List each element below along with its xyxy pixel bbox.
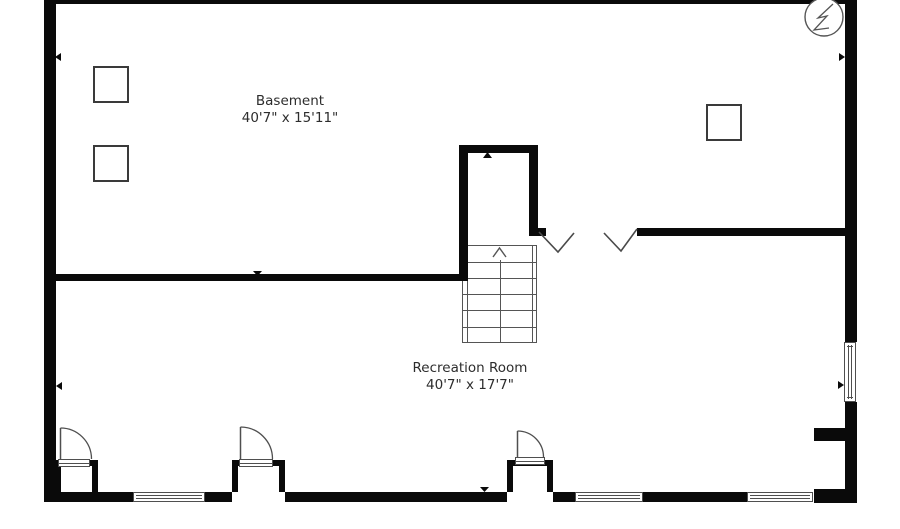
window-pane-line bbox=[750, 495, 810, 496]
window-sill-line bbox=[847, 346, 853, 347]
wall-right-lower bbox=[845, 402, 857, 503]
window-right-wall bbox=[844, 342, 856, 402]
door-threshold bbox=[58, 459, 90, 467]
support-post bbox=[706, 104, 742, 141]
wall-marker-left-icon bbox=[56, 382, 62, 390]
window-pane-line bbox=[750, 498, 810, 499]
window-pane-line bbox=[851, 345, 852, 399]
floorplan-canvas: Basement 40'7" x 15'11" Recreation Room … bbox=[0, 0, 900, 529]
stair-tread bbox=[463, 278, 536, 279]
support-post bbox=[93, 66, 129, 103]
door-swing-arc bbox=[61, 428, 92, 459]
lightning-bolt-icon bbox=[814, 4, 833, 30]
window-pane-line bbox=[136, 495, 202, 496]
wall-stairwell-right bbox=[529, 145, 538, 236]
wall-interior-left bbox=[56, 274, 463, 281]
wall-stairwell-return bbox=[538, 228, 546, 236]
stair-tread bbox=[463, 327, 536, 328]
wall-niche-top bbox=[814, 428, 846, 441]
wall-bottom-seg bbox=[205, 492, 232, 502]
staircase bbox=[462, 245, 537, 343]
opening-v-mark bbox=[604, 229, 637, 251]
wall-niche-bottom bbox=[814, 489, 857, 503]
wall-bottom-seg bbox=[285, 492, 507, 502]
door-opening bbox=[238, 466, 279, 492]
wall-stairwell-top bbox=[459, 145, 538, 153]
room-dimensions: 40'7" x 17'7" bbox=[413, 377, 528, 394]
wall-top bbox=[44, 0, 857, 4]
window bbox=[133, 492, 205, 502]
stair-tread bbox=[463, 294, 536, 295]
window-pane-line bbox=[848, 345, 849, 399]
door-opening bbox=[513, 466, 547, 492]
window-pane-line bbox=[578, 498, 640, 499]
door-opening bbox=[61, 466, 92, 492]
niche-interior bbox=[822, 441, 845, 489]
door-threshold bbox=[239, 459, 273, 467]
stair-tread bbox=[463, 310, 536, 311]
stair-center-line bbox=[500, 260, 501, 342]
wall-right-upper bbox=[845, 0, 857, 342]
electrical-panel-icon bbox=[805, 0, 843, 36]
wall-bottom-seg bbox=[553, 492, 575, 502]
room-label-recreation: Recreation Room 40'7" x 17'7" bbox=[413, 360, 528, 394]
room-name: Recreation Room bbox=[413, 360, 528, 377]
wall-left bbox=[44, 0, 56, 502]
door-swing-arc bbox=[518, 431, 544, 457]
room-dimensions: 40'7" x 15'11" bbox=[242, 110, 339, 127]
window-pane-line bbox=[136, 498, 202, 499]
wall-stairwell-left bbox=[459, 145, 468, 281]
room-name: Basement bbox=[242, 93, 339, 110]
door-threshold bbox=[515, 457, 545, 465]
wall-bottom-seg bbox=[56, 492, 135, 502]
window-sill-line bbox=[847, 397, 853, 398]
wall-interior-right bbox=[637, 228, 845, 236]
window-pane-line bbox=[578, 495, 640, 496]
window bbox=[747, 492, 813, 502]
support-post bbox=[93, 145, 129, 182]
stair-tread bbox=[463, 262, 536, 263]
wall-bottom-seg bbox=[643, 492, 747, 502]
door-swing-arc bbox=[241, 427, 273, 459]
window bbox=[575, 492, 643, 502]
floorplan-line-overlay bbox=[0, 0, 900, 529]
room-label-basement: Basement 40'7" x 15'11" bbox=[242, 93, 339, 127]
